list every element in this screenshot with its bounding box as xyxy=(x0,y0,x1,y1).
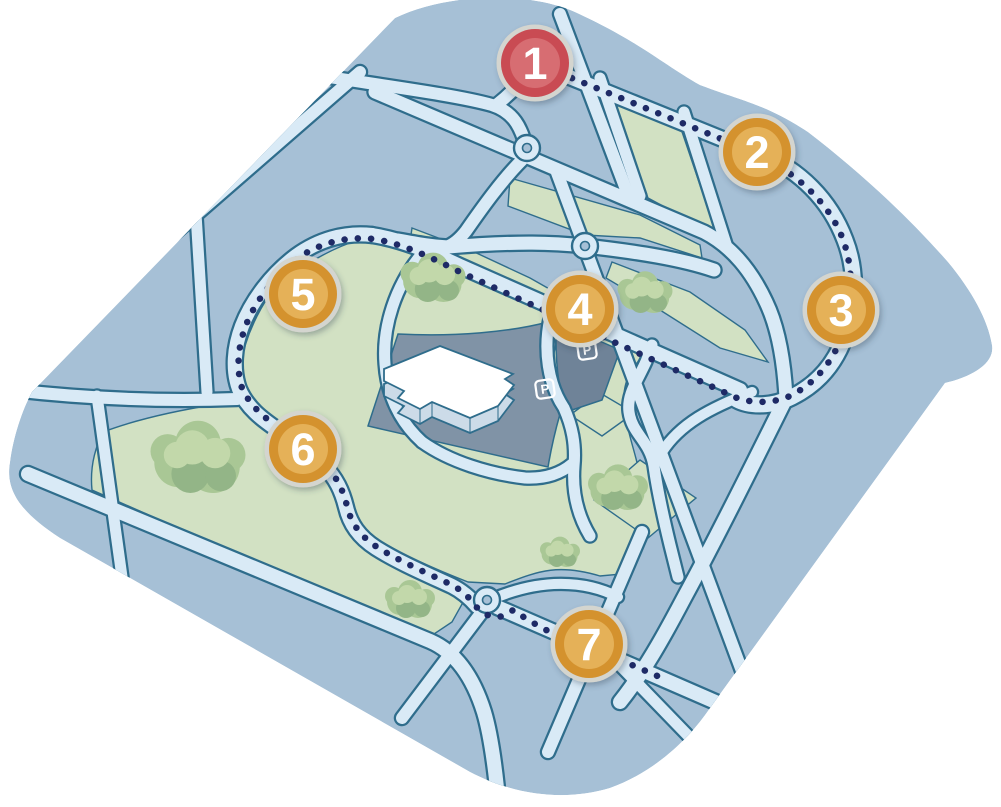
campus-map-illustration: PP 1234567 xyxy=(0,0,1001,807)
roundabout xyxy=(572,233,598,259)
marker-number: 5 xyxy=(290,269,315,320)
route-marker-4[interactable]: 4 xyxy=(542,271,619,348)
map-canvas: PP 1234567 xyxy=(0,0,1001,807)
route-marker-7[interactable]: 7 xyxy=(551,606,628,683)
marker-number: 7 xyxy=(576,619,601,670)
roundabout xyxy=(514,135,540,161)
marker-number: 2 xyxy=(744,127,769,178)
route-marker-1[interactable]: 1 xyxy=(497,25,574,102)
route-marker-5[interactable]: 5 xyxy=(265,256,342,333)
marker-number: 4 xyxy=(567,284,592,335)
route-marker-3[interactable]: 3 xyxy=(803,272,880,349)
route-marker-6[interactable]: 6 xyxy=(265,411,342,488)
marker-number: 6 xyxy=(290,424,315,475)
map-clipped-content: PP xyxy=(9,0,992,795)
route-marker-2[interactable]: 2 xyxy=(719,114,796,191)
marker-number: 1 xyxy=(522,38,547,89)
marker-number: 3 xyxy=(828,285,853,336)
